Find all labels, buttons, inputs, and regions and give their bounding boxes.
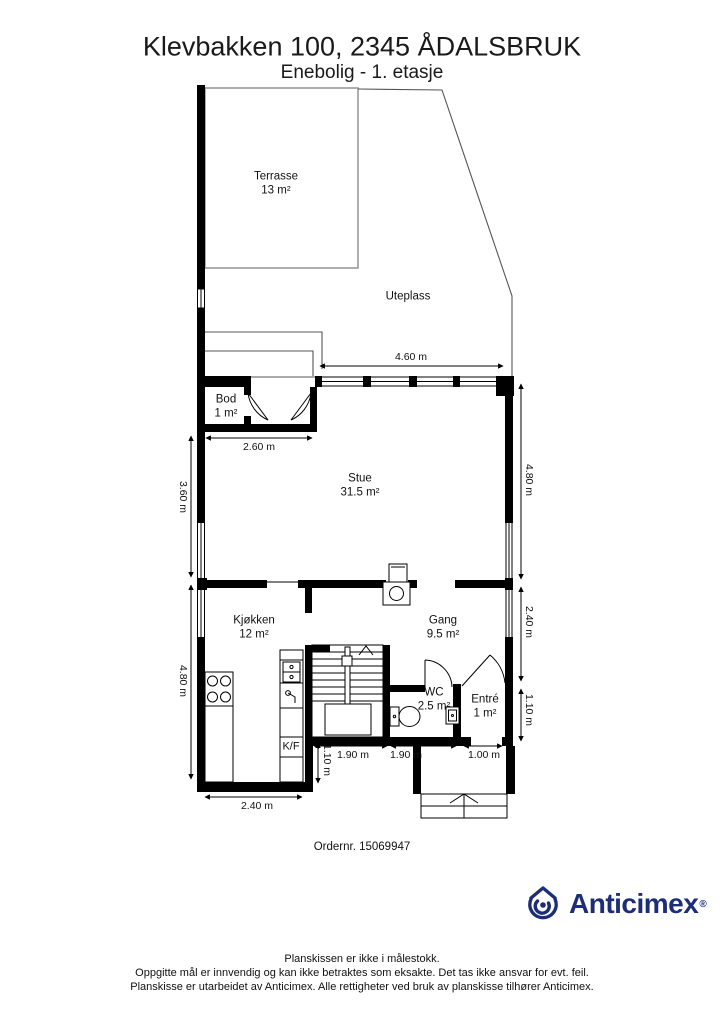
anticimex-logo-icon	[524, 885, 562, 923]
room-label-gang: Gang 9.5 m²	[427, 615, 460, 642]
dim-kjokken-left-height: 4.80 m	[177, 665, 189, 697]
doors	[248, 393, 505, 688]
terrace-door	[291, 393, 311, 420]
room-label-entre: Entré 1 m²	[471, 694, 499, 721]
dim-stue-right-height: 4.80 m	[523, 464, 535, 496]
room-label-stue: Stue 31.5 m²	[341, 473, 380, 500]
interior-walls	[197, 387, 505, 737]
landing-edge-inner	[205, 351, 313, 376]
kitchen-fixtures	[205, 650, 303, 782]
dim-entre-right-height: 1.10 m	[523, 694, 535, 726]
dim-stue-top-width: 4.60 m	[395, 351, 427, 363]
window-right-gang	[506, 590, 512, 637]
room-label-bod: Bod 1 m²	[215, 394, 238, 421]
room-label-wc: WC 2.5 m²	[418, 687, 451, 714]
dim-entre-width: 1.00 m	[468, 749, 500, 761]
dim-bod-width: 2.60 m	[243, 441, 275, 453]
site-outline	[205, 88, 512, 377]
window-left-kjokken	[198, 590, 205, 637]
anticimex-logo-text: Anticimex	[569, 888, 698, 919]
room-label-uteplass: Uteplass	[386, 290, 431, 304]
dim-stairs-width: 1.90 m	[337, 749, 369, 761]
entry-steps	[421, 794, 507, 818]
floorplan-drawing	[0, 0, 724, 1024]
toilet-icon	[390, 707, 420, 727]
dim-gang-right-height: 2.40 m	[523, 606, 535, 638]
oven-icon	[283, 662, 300, 682]
window-band-top	[322, 376, 498, 387]
window-left-upper	[196, 289, 206, 308]
anticimex-logo: Anticimex®	[524, 885, 707, 923]
wc-door	[425, 660, 452, 688]
dim-kjokken-width: 2.40 m	[241, 800, 273, 812]
stairs	[312, 645, 383, 737]
kitchen-counter-left	[205, 672, 233, 782]
bod-door	[248, 393, 268, 420]
fireplace-icon	[383, 564, 410, 605]
site-boundary-line	[358, 89, 512, 376]
room-label-kjokken: Kjøkken 12 m²	[233, 615, 275, 642]
fridge-freezer-label: K/F	[282, 740, 299, 754]
exterior-walls	[197, 85, 515, 794]
window-right-stue	[506, 523, 512, 578]
footer-disclaimer-line2: Oppgitte mål er innvendig og kan ikke be…	[135, 967, 589, 979]
stairs-up-arrow-icon	[359, 646, 373, 655]
floorplan-page: Klevbakken 100, 2345 ÅDALSBRUK Enebolig …	[0, 0, 724, 1024]
footer-disclaimer-line3: Planskisse er utarbeidet av Anticimex. A…	[130, 981, 593, 993]
order-number: Ordernr. 15069947	[314, 841, 411, 853]
dim-stairs-depth: 1.10 m	[321, 744, 333, 776]
registered-trademark-symbol: ®	[699, 899, 706, 910]
entre-door	[462, 655, 505, 686]
window-left-stue	[198, 523, 205, 578]
footer-disclaimer-line1: Planskissen er ikke i målestokk.	[284, 953, 439, 965]
dim-stue-left-height: 3.60 m	[177, 481, 189, 513]
dim-wc-width: 1.90 m	[390, 749, 422, 761]
room-label-terrasse: Terrasse 13 m²	[254, 171, 298, 198]
